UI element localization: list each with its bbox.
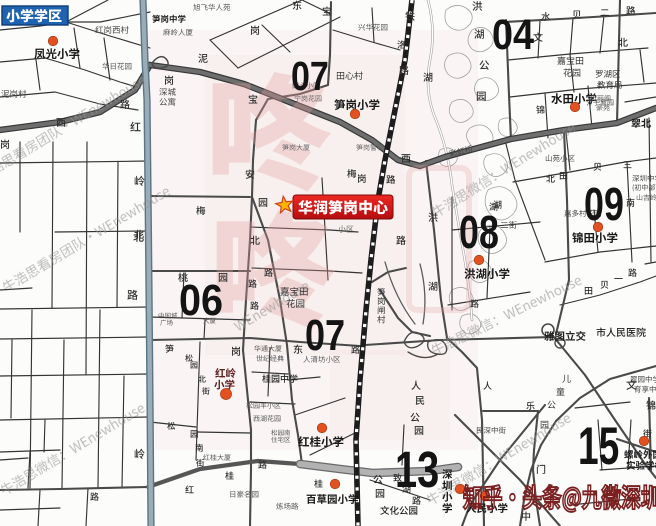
- svg-text:07: 07: [291, 53, 329, 99]
- svg-text:15: 15: [578, 416, 619, 475]
- svg-text:13: 13: [395, 441, 439, 498]
- svg-text:06: 06: [179, 275, 223, 324]
- svg-text:09: 09: [584, 179, 624, 230]
- svg-text:07: 07: [305, 311, 345, 360]
- svg-text:08: 08: [459, 207, 499, 258]
- svg-text:04: 04: [492, 11, 535, 59]
